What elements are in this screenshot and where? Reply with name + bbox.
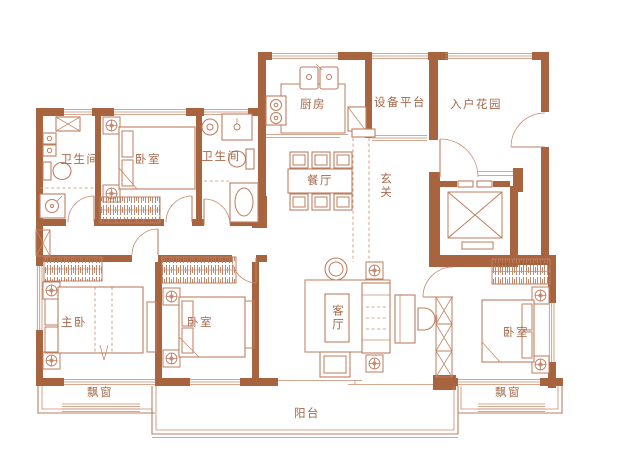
label-bedroom-2: 卧室 bbox=[187, 315, 213, 329]
sofa-icon bbox=[362, 283, 390, 353]
stool-icon bbox=[418, 308, 437, 330]
sliding-door-panel bbox=[352, 129, 375, 137]
kitchen-sink-icon bbox=[300, 64, 338, 89]
stove-icon bbox=[266, 96, 286, 125]
label-entry-garden: 入户花园 bbox=[450, 97, 502, 111]
label-equipment-platform: 设备平台 bbox=[374, 95, 426, 109]
label-bathroom-1: 卫生间 bbox=[61, 152, 100, 166]
nightstand-icon bbox=[163, 288, 180, 305]
wardrobe-icon bbox=[44, 257, 102, 281]
elevator-icon bbox=[448, 181, 502, 249]
shower-icon bbox=[40, 194, 65, 218]
wardrobe-icon bbox=[492, 259, 550, 284]
label-master-bedroom: 主卧 bbox=[61, 316, 87, 329]
bathroom-2-fixtures bbox=[202, 114, 258, 222]
door-arc bbox=[204, 199, 230, 225]
nightstand-icon bbox=[43, 352, 60, 369]
sink-icon bbox=[202, 114, 252, 140]
label-bedroom-3: 卧室 bbox=[503, 325, 529, 339]
foyer-boundary bbox=[353, 138, 369, 262]
label-living-room: 客厅 bbox=[331, 304, 344, 332]
label-kitchen: 厨房 bbox=[300, 98, 326, 111]
armchair-icon bbox=[320, 352, 350, 377]
bedroom-1-furniture bbox=[100, 117, 195, 223]
door-arc bbox=[68, 196, 94, 222]
sink-icon bbox=[43, 133, 56, 156]
door-arc bbox=[423, 267, 453, 297]
bedroom-3-furniture bbox=[482, 259, 550, 373]
fridge-icon bbox=[348, 107, 366, 131]
label-bay-window-left: 飘窗 bbox=[87, 385, 113, 399]
plant-icon bbox=[325, 258, 347, 280]
living-room-furniture bbox=[305, 258, 437, 377]
bathroom-1-fixtures bbox=[40, 117, 95, 218]
washer-icon bbox=[56, 117, 80, 131]
bathtub-icon bbox=[230, 183, 258, 222]
label-dining: 餐厅 bbox=[307, 173, 333, 187]
tv-cabinet-icon bbox=[395, 295, 415, 343]
garden-door-arc bbox=[511, 113, 545, 147]
label-bay-window-right: 飘窗 bbox=[495, 385, 521, 399]
entry-door-arc bbox=[440, 139, 478, 177]
cabinet-icon bbox=[147, 302, 156, 352]
door-arc bbox=[166, 196, 192, 222]
bedroom-2-furniture bbox=[162, 257, 254, 367]
nightstand-icon bbox=[103, 117, 120, 134]
side-table-icon bbox=[366, 355, 383, 372]
bed-icon bbox=[45, 287, 143, 360]
door-arc bbox=[132, 229, 158, 255]
side-table-icon bbox=[366, 262, 383, 279]
master-bedroom-furniture bbox=[43, 257, 156, 369]
wardrobe-icon bbox=[162, 257, 236, 283]
floor-plan: 卫生间 卧室 卫生间 厨房 设备平台 入户花园 餐厅 玄关 主卧 卧室 客厅 卧… bbox=[0, 0, 619, 470]
wardrobe-icon bbox=[100, 197, 160, 223]
nightstand-icon bbox=[163, 350, 180, 367]
label-foyer: 玄关 bbox=[379, 172, 392, 200]
label-bedroom-1: 卧室 bbox=[135, 152, 161, 166]
floor-plan-page: 卫生间 卧室 卫生间 厨房 设备平台 入户花园 餐厅 玄关 主卧 卧室 客厅 卧… bbox=[0, 0, 619, 470]
label-balcony: 阳台 bbox=[294, 406, 320, 420]
label-bathroom-2: 卫生间 bbox=[202, 149, 241, 163]
